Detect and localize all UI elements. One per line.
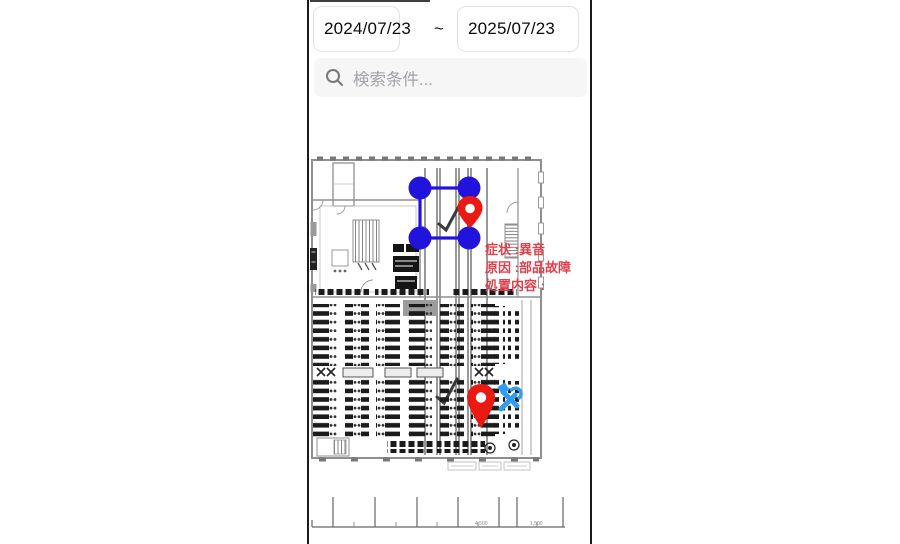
screen: 2024/07/23 ~ 2025/07/23 検索条件... bbox=[0, 0, 900, 544]
floorplan-drawing: 4,500 1,500 bbox=[310, 157, 565, 528]
annotation-action: 処置内容 : bbox=[485, 277, 571, 295]
annotation-cause: 原因 :部品故障 bbox=[485, 259, 571, 277]
ruler-label-b: 1,500 bbox=[530, 521, 543, 527]
incident-annotation: 症状 :異音 原因 :部品故障 処置内容 : bbox=[485, 241, 571, 295]
ruler-label-a: 4,500 bbox=[475, 521, 488, 527]
app-viewport: 2024/07/23 ~ 2025/07/23 検索条件... bbox=[307, 0, 592, 544]
floorplan-map[interactable]: 4,500 1,500 bbox=[309, 0, 590, 544]
annotation-symptom: 症状 :異音 bbox=[485, 241, 571, 259]
